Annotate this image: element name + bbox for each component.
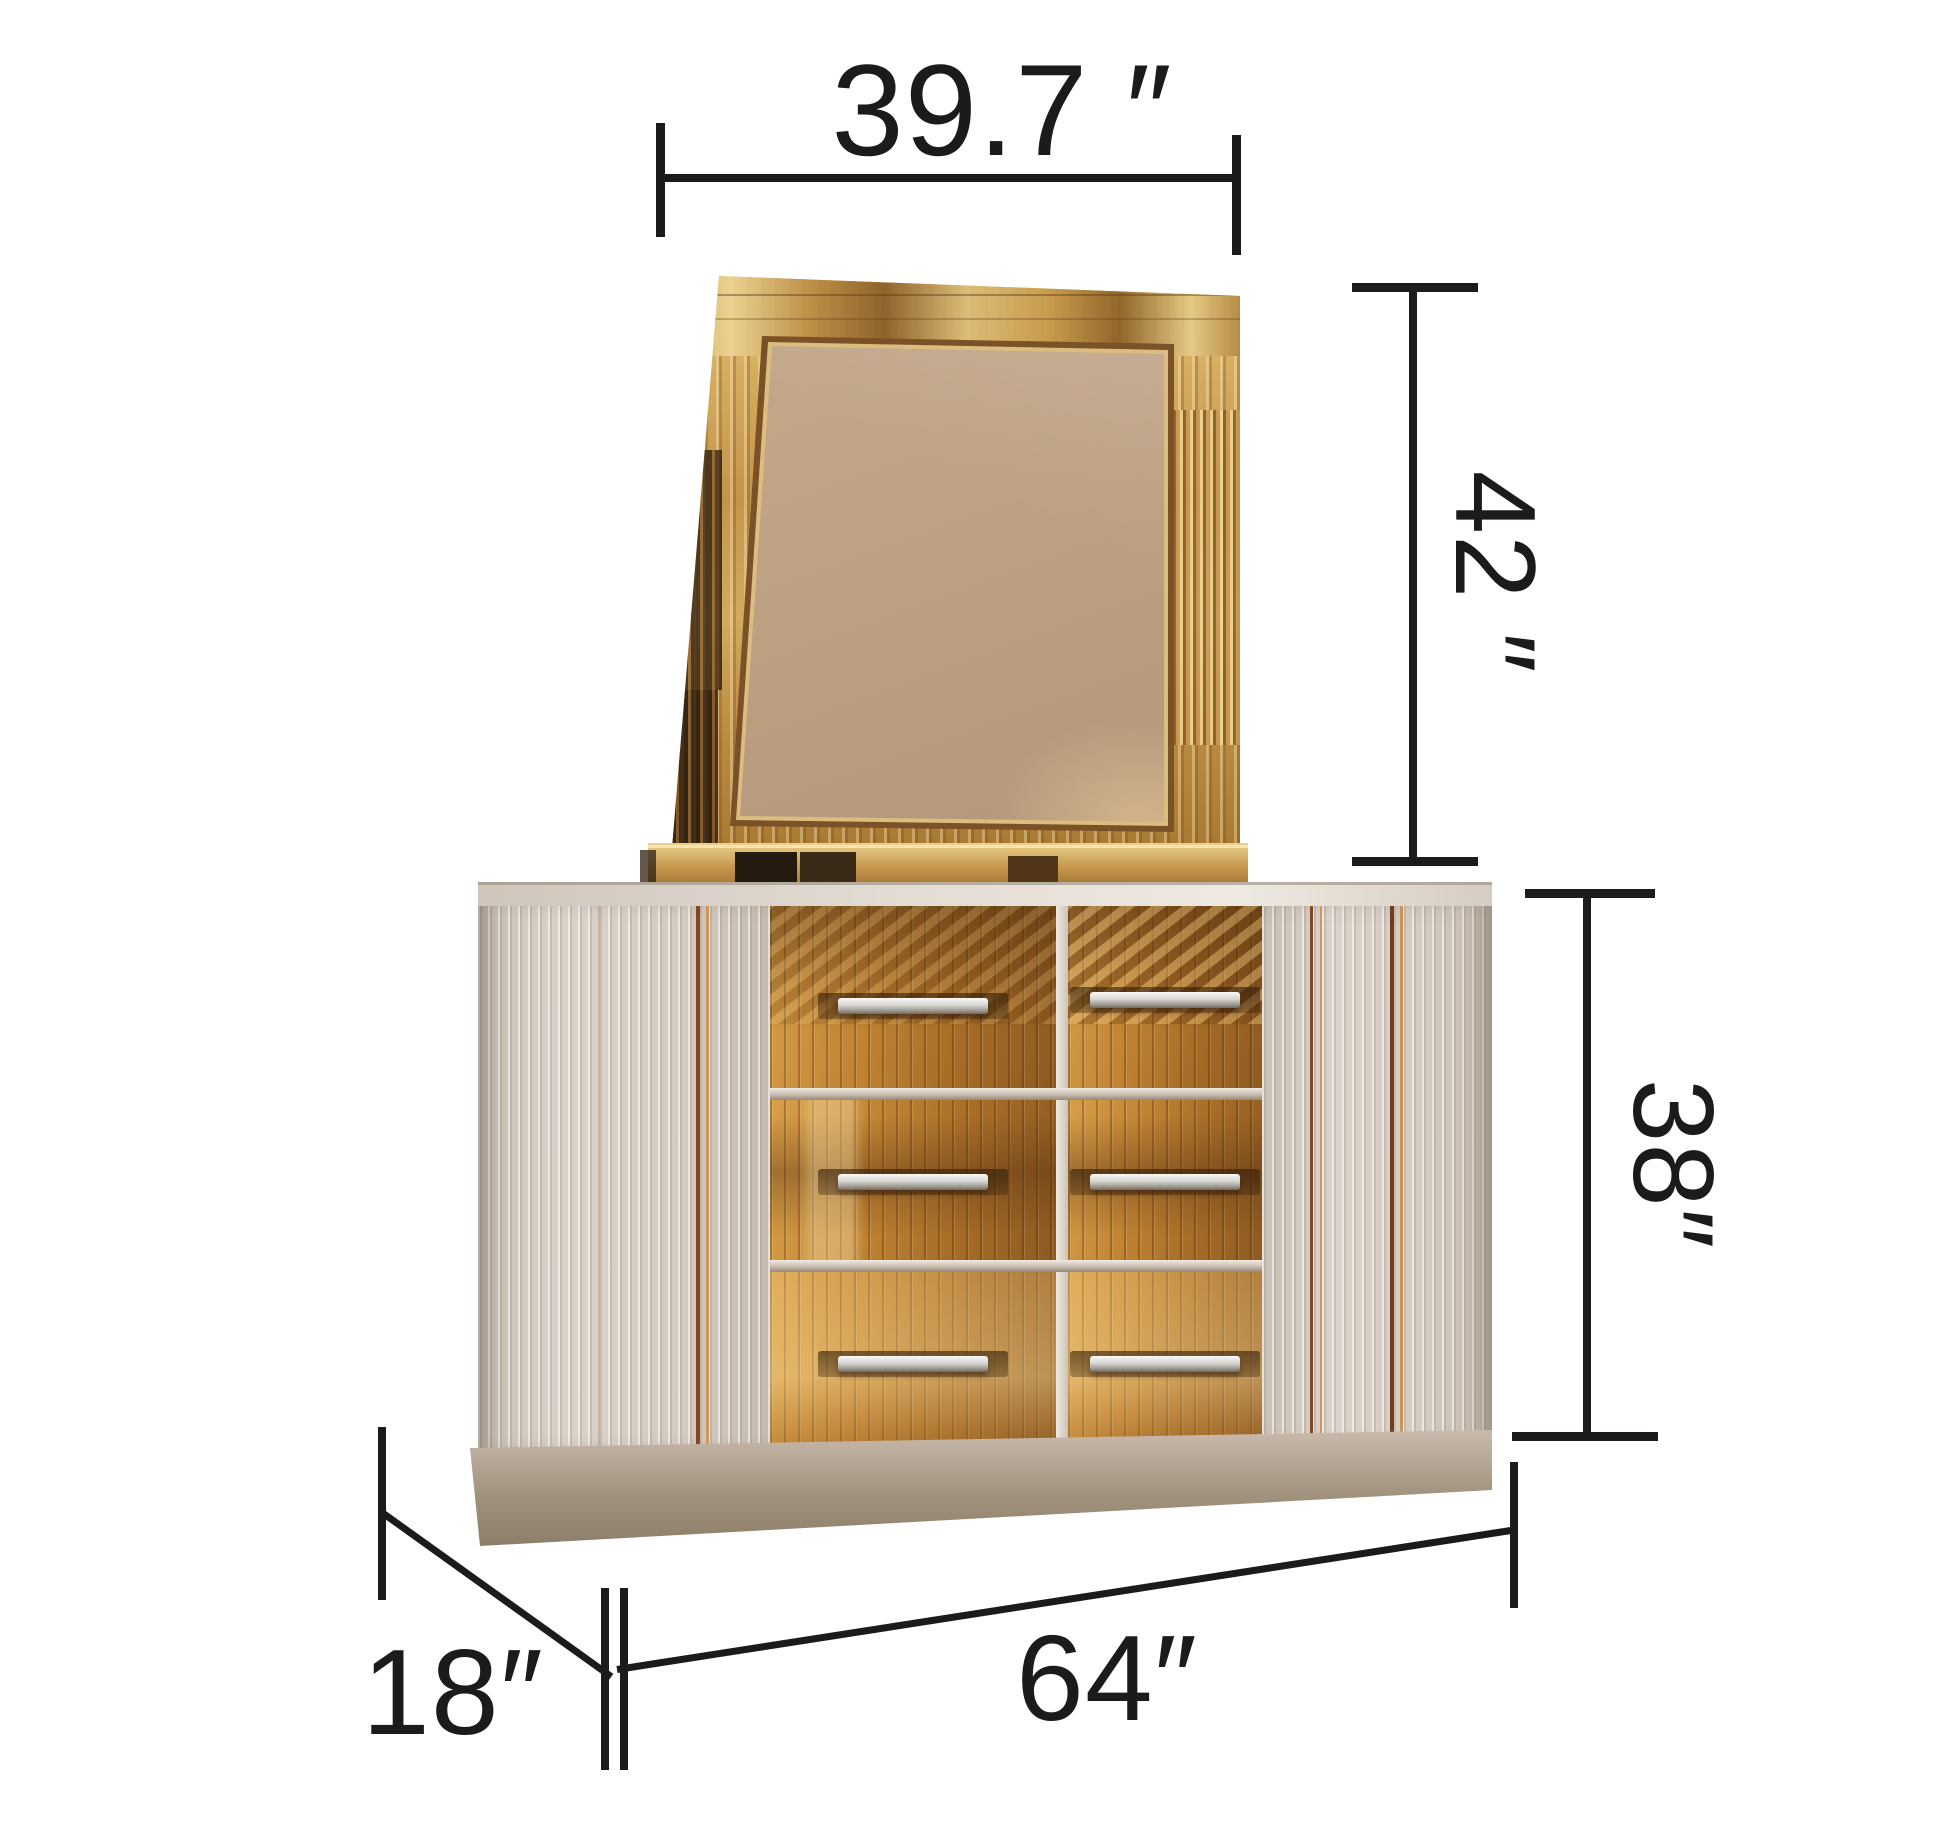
dim-mirror-height-label: 42 ″ — [1437, 471, 1551, 674]
dim-dresser-width-tick-left-1 — [601, 1588, 609, 1770]
drawer-handle — [1070, 1169, 1260, 1195]
dim-mirror-width-tick-left — [656, 123, 665, 237]
dim-dresser-height-label: 38″ — [1615, 1079, 1729, 1249]
mirror-frame-step-line — [660, 318, 1250, 320]
dresser-right-panel — [1262, 906, 1492, 1448]
panel-copper-accent — [706, 906, 709, 1448]
mirror-frame-step-line — [660, 294, 1250, 296]
drawer-handle-bar — [838, 1174, 988, 1190]
mirror-frame-left-reeds — [660, 450, 722, 690]
dim-mirror-height-cap-top — [1352, 283, 1478, 292]
drawer-handle — [1070, 987, 1260, 1013]
drawer-handle — [818, 993, 1008, 1019]
dim-mirror-height-cap-bottom — [1352, 857, 1478, 866]
mirror — [660, 270, 1250, 870]
dresser-base-plinth — [462, 1428, 1502, 1548]
panel-copper-accent — [1390, 906, 1394, 1448]
dim-mirror-width-label: 39.7 ″ — [831, 45, 1172, 175]
drawer-row-divider — [770, 1088, 1262, 1100]
drawer-row-divider — [770, 1260, 1262, 1272]
dresser-left-panel — [478, 906, 770, 1448]
dim-dresser-width-tick-right — [1510, 1462, 1518, 1608]
panel-copper-accent — [598, 906, 600, 1448]
dim-dresser-depth-label: 18″ — [362, 1631, 544, 1753]
mirror-base-highlight — [648, 845, 1248, 848]
drawer-handle-bar — [1090, 1174, 1240, 1190]
drawer-handle-bar — [1090, 992, 1240, 1008]
product-dimension-diagram: 39.7 ″ 42 ″ 38″ 18″ 64″ — [0, 0, 1946, 1835]
panel-copper-accent — [1320, 906, 1322, 1448]
dim-dresser-width-tick-left-2 — [620, 1588, 628, 1770]
dim-dresser-height-cap-bottom — [1512, 1432, 1658, 1441]
drawer-handle-bar — [838, 998, 988, 1014]
panel-copper-accent — [696, 906, 700, 1448]
dim-mirror-width-tick-right — [1232, 135, 1241, 255]
panel-copper-accent — [1310, 906, 1313, 1448]
dim-dresser-width-label: 64″ — [1016, 1617, 1198, 1739]
panel-copper-accent — [1400, 906, 1403, 1448]
drawer-handle — [818, 1351, 1008, 1377]
dresser-center-divider — [1056, 906, 1068, 1448]
dim-dresser-height-cap-top — [1525, 889, 1655, 898]
drawer-handle — [818, 1169, 1008, 1195]
drawer-handle-bar — [1090, 1356, 1240, 1372]
dim-dresser-height-line — [1583, 893, 1591, 1437]
drawer-handle — [1070, 1351, 1260, 1377]
drawer-handle-bar — [838, 1356, 988, 1372]
mirror-frame-left-reeds-lower — [660, 690, 718, 865]
dim-mirror-height-line — [1409, 287, 1417, 862]
